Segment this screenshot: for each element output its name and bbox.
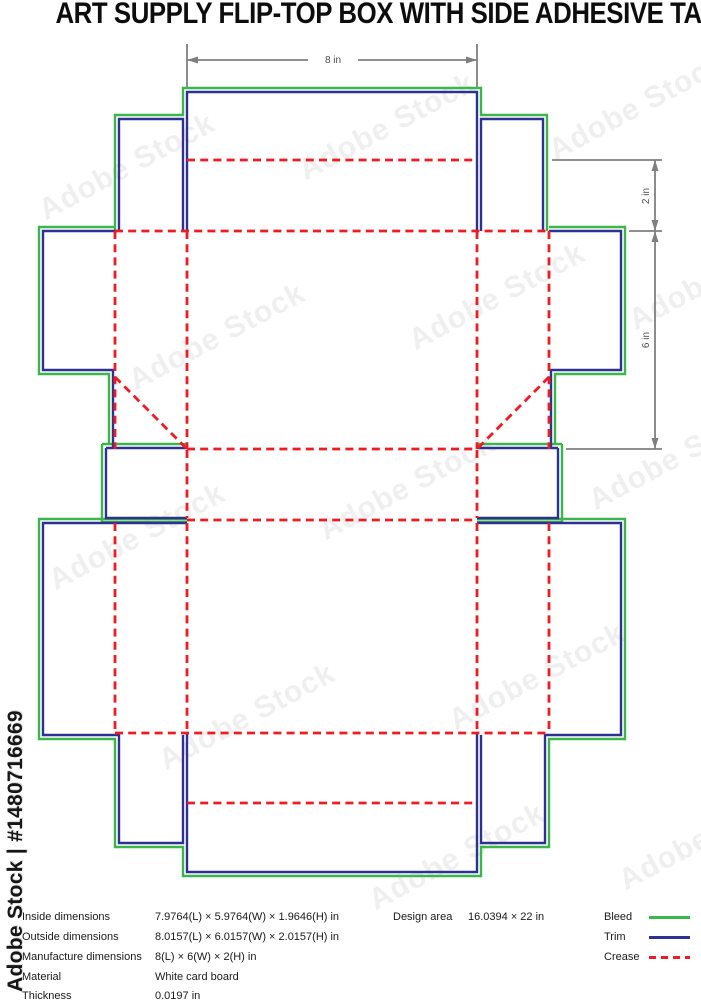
stock-id-watermark: Adobe Stock | #1480716669 — [4, 710, 28, 992]
arrow-up-icon — [652, 160, 659, 171]
arrow-left-icon — [187, 57, 198, 64]
bleed-lower-body — [39, 519, 625, 876]
trim-line-swatch — [649, 936, 690, 939]
dimension-label-top: 8 in — [325, 55, 341, 66]
trim-right-tab — [477, 448, 558, 518]
trim-top-flap — [187, 92, 477, 231]
dimension-layer — [187, 44, 662, 449]
dieline-diagram: 8 in 2 in 6 in — [0, 0, 701, 1000]
trim-left-tab — [106, 448, 187, 518]
bleed-right-wing — [549, 227, 625, 444]
legend-value: 8.0157(L) × 6.0157(W) × 2.0157(H) in — [155, 931, 339, 943]
legend-value: 0.0197 in — [155, 990, 200, 1000]
crease-diagonal-left — [115, 377, 187, 449]
legend-label: Thickness — [22, 990, 72, 1000]
arrow-up-icon — [652, 231, 659, 242]
trim-layer — [43, 92, 621, 872]
trim-top-tab-right — [481, 119, 543, 231]
dimension-label-right-upper: 2 in — [641, 188, 652, 204]
bleed-left-tab — [102, 444, 187, 522]
arrow-right-icon — [466, 57, 477, 64]
crease-layer — [115, 160, 549, 803]
legend-value: White card board — [155, 971, 239, 983]
design-area-label: Design area — [393, 911, 452, 923]
bleed-left-wing — [39, 227, 115, 444]
crease-line-swatch — [649, 956, 690, 959]
bleed-layer — [39, 88, 625, 876]
line-type-label-trim: Trim — [604, 931, 626, 943]
arrow-down-icon — [652, 220, 659, 231]
legend-label: Inside dimensions — [22, 911, 110, 923]
legend-label: Outside dimensions — [22, 931, 119, 943]
line-type-label-crease: Crease — [604, 951, 639, 963]
dimension-label-right-lower: 6 in — [641, 332, 652, 348]
trim-left-wing — [43, 231, 115, 448]
dimension-arrows — [187, 57, 659, 450]
line-type-label-bleed: Bleed — [604, 911, 632, 923]
legend-label: Manufacture dimensions — [22, 951, 142, 963]
dieline-page: Adobe Stock Adobe Stock Adobe Stock Adob… — [0, 0, 701, 1000]
legend-value: 8(L) × 6(W) × 2(H) in — [155, 951, 256, 963]
legend-value: 7.9764(L) × 5.9764(W) × 1.9646(H) in — [155, 911, 339, 923]
trim-top-tab-left — [119, 119, 183, 231]
bleed-line-swatch — [649, 916, 690, 919]
design-area-value: 16.0394 × 22 in — [468, 911, 544, 923]
bleed-right-tab — [477, 444, 562, 522]
crease-diagonal-right — [477, 377, 549, 449]
trim-right-wing — [549, 231, 621, 448]
arrow-down-icon — [652, 438, 659, 449]
